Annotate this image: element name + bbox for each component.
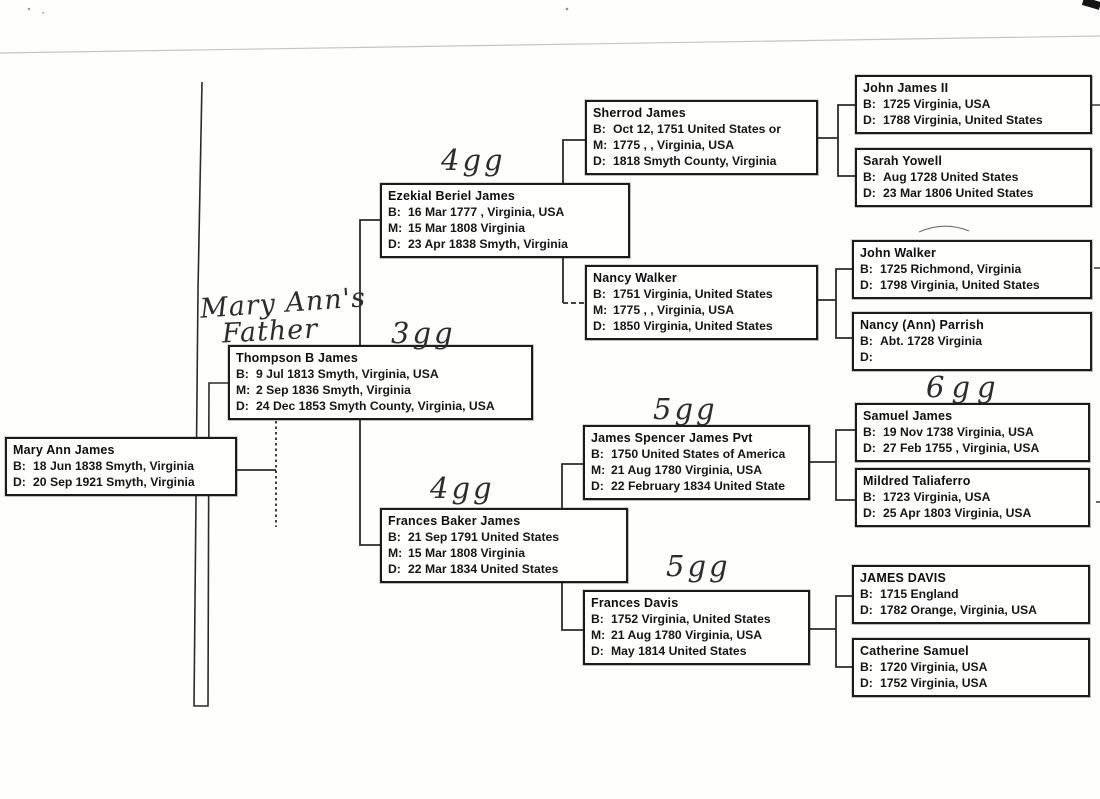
person-name: Samuel James (863, 408, 1082, 424)
line-label: D: (860, 277, 880, 293)
line-label: M: (388, 220, 408, 236)
line-label: D: (591, 478, 611, 494)
death-line: D:1850 Virginia, United States (593, 318, 810, 334)
pen-squiggle (919, 226, 969, 232)
page-edge-line (0, 36, 1100, 53)
person-name: Mary Ann James (13, 442, 229, 458)
line-value: 22 February 1834 United State (611, 479, 785, 493)
birth-line: B:1725 Richmond, Virginia (860, 261, 1084, 277)
line-value: 24 Dec 1853 Smyth County, Virginia, USA (256, 399, 495, 413)
person-box-samuel-james: Samuel James B:19 Nov 1738 Virginia, USA… (855, 403, 1090, 462)
line-label: M: (388, 545, 408, 561)
edge-dashes (1091, 105, 1100, 502)
death-line: D:1752 Virginia, USA (860, 675, 1082, 691)
line-value: 1775 , , Virginia, USA (613, 303, 734, 317)
line-label: D: (236, 398, 256, 414)
line-value: 1818 Smyth County, Virginia (613, 154, 776, 168)
marriage-line: M:1775 , , Virginia, USA (593, 137, 810, 153)
line-value: 1775 , , Virginia, USA (613, 138, 734, 152)
person-box-john-walker: John Walker B:1725 Richmond, Virginia D:… (852, 240, 1092, 299)
birth-line: B:1723 Virginia, USA (863, 489, 1082, 505)
birth-line: B:16 Mar 1777 , Virginia, USA (388, 204, 622, 220)
line-value: 25 Apr 1803 Virginia, USA (883, 506, 1031, 520)
death-line: D:20 Sep 1921 Smyth, Virginia (13, 474, 229, 490)
line-value: 2 Sep 1836 Smyth, Virginia (256, 383, 411, 397)
marriage-line: M:21 Aug 1780 Virginia, USA (591, 462, 802, 478)
line-value: 20 Sep 1921 Smyth, Virginia (33, 475, 195, 489)
line-label: D: (593, 318, 613, 334)
line-value: 1798 Virginia, United States (880, 278, 1040, 292)
death-line: D: (860, 349, 1084, 365)
line-label: B: (863, 169, 883, 185)
line-value: 21 Sep 1791 United States (408, 530, 559, 544)
line-value: 1782 Orange, Virginia, USA (880, 603, 1037, 617)
person-box-frances-baker-james: Frances Baker James B:21 Sep 1791 United… (380, 508, 628, 583)
line-label: B: (860, 261, 880, 277)
handwritten-generation-label-5gg-jamesspencer: 5gg (653, 392, 718, 426)
death-line: D:27 Feb 1755 , Virginia, USA (863, 440, 1082, 456)
line-value: 21 Aug 1780 Virginia, USA (611, 628, 762, 642)
line-label: B: (388, 204, 408, 220)
line-label: B: (863, 96, 883, 112)
person-name: Thompson B James (236, 350, 525, 366)
line-label: B: (860, 333, 880, 349)
line-label: D: (388, 561, 408, 577)
line-label: B: (860, 586, 880, 602)
line-value: 22 Mar 1834 United States (408, 562, 558, 576)
person-name: Nancy Walker (593, 270, 810, 286)
birth-line: B:1725 Virginia, USA (863, 96, 1084, 112)
line-value: 1715 England (880, 587, 959, 601)
person-name: JAMES DAVIS (860, 570, 1082, 586)
marriage-line: M:15 Mar 1808 Virginia (388, 545, 620, 561)
person-box-frances-davis: Frances Davis B:1752 Virginia, United St… (583, 590, 810, 665)
death-line: D:May 1814 United States (591, 643, 802, 659)
birth-line: B:Aug 1728 United States (863, 169, 1084, 185)
line-value: Oct 12, 1751 United States or (613, 122, 781, 136)
birth-line: B:1715 England (860, 586, 1082, 602)
line-label: B: (863, 424, 883, 440)
person-box-mary-ann-james: Mary Ann James B:18 Jun 1838 Smyth, Virg… (5, 437, 237, 496)
person-box-ezekial-beriel-james: Ezekial Beriel James B:16 Mar 1777 , Vir… (380, 183, 630, 258)
line-label: D: (860, 602, 880, 618)
line-label: M: (591, 462, 611, 478)
handwritten-generation-label-4gg-ezekial: 4gg (441, 143, 506, 177)
handwritten-generation-label-6gg-samuel: 6gg (926, 370, 1003, 404)
connector-jamesspencer-parents (836, 430, 856, 500)
person-name: James Spencer James Pvt (591, 430, 802, 446)
line-label: B: (860, 659, 880, 675)
death-line: D:22 February 1834 United State (591, 478, 802, 494)
death-line: D:1818 Smyth County, Virginia (593, 153, 810, 169)
line-label: D: (13, 474, 33, 490)
line-label: B: (13, 458, 33, 474)
connector-francesdavis-parents (836, 596, 853, 667)
handwritten-generation-label-4gg-francesbaker: 4gg (430, 471, 495, 505)
line-label: M: (593, 137, 613, 153)
hand-drawn-spine-line (194, 82, 228, 706)
person-name: Frances Davis (591, 595, 802, 611)
line-value: 27 Feb 1755 , Virginia, USA (883, 441, 1039, 455)
line-value: 1725 Richmond, Virginia (880, 262, 1021, 276)
scanned-pedigree-page: Mary Ann's Father 4gg 3gg 5gg 4gg 5gg 6g… (0, 0, 1100, 799)
person-name: Sherrod James (593, 105, 810, 121)
person-box-james-spencer-james-pvt: James Spencer James Pvt B:1750 United St… (583, 425, 810, 500)
scan-speck (42, 12, 44, 14)
handwritten-generation-label-3gg-thompson: 3gg (391, 316, 456, 350)
birth-line: B:18 Jun 1838 Smyth, Virginia (13, 458, 229, 474)
line-label: D: (863, 112, 883, 128)
birth-line: B:1751 Virginia, United States (593, 286, 810, 302)
marriage-line: M:21 Aug 1780 Virginia, USA (591, 627, 802, 643)
line-label: M: (591, 627, 611, 643)
person-box-mildred-taliaferro: Mildred Taliaferro B:1723 Virginia, USA … (855, 468, 1090, 527)
line-value: 23 Apr 1838 Smyth, Virginia (408, 237, 568, 251)
line-value: 1725 Virginia, USA (883, 97, 990, 111)
line-value: 19 Nov 1738 Virginia, USA (883, 425, 1034, 439)
line-value: 15 Mar 1808 Virginia (408, 546, 525, 560)
person-box-nancy-ann-parrish: Nancy (Ann) Parrish B:Abt. 1728 Virginia… (852, 312, 1092, 371)
line-label: B: (863, 489, 883, 505)
line-value: 23 Mar 1806 United States (883, 186, 1033, 200)
line-value: 18 Jun 1838 Smyth, Virginia (33, 459, 194, 473)
line-value: 1723 Virginia, USA (883, 490, 990, 504)
line-value: 21 Aug 1780 Virginia, USA (611, 463, 762, 477)
marriage-line: M:2 Sep 1836 Smyth, Virginia (236, 382, 525, 398)
line-label: M: (593, 302, 613, 318)
death-line: D:23 Apr 1838 Smyth, Virginia (388, 236, 622, 252)
line-label: D: (593, 153, 613, 169)
person-name: Nancy (Ann) Parrish (860, 317, 1084, 333)
handwritten-note-line2: Father (221, 314, 319, 350)
death-line: D:25 Apr 1803 Virginia, USA (863, 505, 1082, 521)
person-box-thompson-b-james: Thompson B James B:9 Jul 1813 Smyth, Vir… (228, 345, 533, 420)
person-name: Ezekial Beriel James (388, 188, 622, 204)
line-label: D: (863, 440, 883, 456)
person-name: Sarah Yowell (863, 153, 1084, 169)
marriage-line: M:1775 , , Virginia, USA (593, 302, 810, 318)
line-value: 9 Jul 1813 Smyth, Virginia, USA (256, 367, 439, 381)
line-value: 16 Mar 1777 , Virginia, USA (408, 205, 564, 219)
line-value: 1750 United States of America (611, 447, 785, 461)
line-label: B: (591, 446, 611, 462)
person-box-james-davis: JAMES DAVIS B:1715 England D:1782 Orange… (852, 565, 1090, 624)
person-box-catherine-samuel: Catherine Samuel B:1720 Virginia, USA D:… (852, 638, 1090, 697)
line-label: B: (593, 121, 613, 137)
person-box-john-james-ii: John James II B:1725 Virginia, USA D:178… (855, 75, 1092, 134)
death-line: D:1782 Orange, Virginia, USA (860, 602, 1082, 618)
line-value: 1788 Virginia, United States (883, 113, 1043, 127)
line-label: D: (863, 185, 883, 201)
person-box-sherrod-james: Sherrod James B:Oct 12, 1751 United Stat… (585, 100, 818, 175)
line-value: Abt. 1728 Virginia (880, 334, 982, 348)
line-value: 1720 Virginia, USA (880, 660, 987, 674)
line-label: B: (388, 529, 408, 545)
scan-speck (28, 8, 30, 10)
line-label: B: (593, 286, 613, 302)
line-value: 1752 Virginia, United States (611, 612, 771, 626)
person-box-nancy-walker: Nancy Walker B:1751 Virginia, United Sta… (585, 265, 818, 340)
page-spine (194, 82, 228, 706)
birth-line: B:Oct 12, 1751 United States or (593, 121, 810, 137)
birth-line: B:1720 Virginia, USA (860, 659, 1082, 675)
person-name: Mildred Taliaferro (863, 473, 1082, 489)
death-line: D:22 Mar 1834 United States (388, 561, 620, 577)
death-line: D:23 Mar 1806 United States (863, 185, 1084, 201)
person-name: John Walker (860, 245, 1084, 261)
line-label: M: (236, 382, 256, 398)
marriage-line: M:15 Mar 1808 Virginia (388, 220, 622, 236)
birth-line: B:19 Nov 1738 Virginia, USA (863, 424, 1082, 440)
person-name: Frances Baker James (388, 513, 620, 529)
scan-speck (566, 8, 569, 11)
connector-sherrod-parents (838, 105, 856, 176)
line-value: Aug 1728 United States (883, 170, 1018, 184)
line-value: 15 Mar 1808 Virginia (408, 221, 525, 235)
handwritten-generation-label-5gg-francesdavis: 5gg (666, 549, 731, 583)
birth-line: B:21 Sep 1791 United States (388, 529, 620, 545)
birth-line: B:Abt. 1728 Virginia (860, 333, 1084, 349)
person-name: John James II (863, 80, 1084, 96)
connector-nancywalker-parents (836, 269, 853, 338)
line-label: D: (591, 643, 611, 659)
line-value: 1752 Virginia, USA (880, 676, 987, 690)
death-line: D:1798 Virginia, United States (860, 277, 1084, 293)
birth-line: B:9 Jul 1813 Smyth, Virginia, USA (236, 366, 525, 382)
birth-line: B:1752 Virginia, United States (591, 611, 802, 627)
death-line: D:1788 Virginia, United States (863, 112, 1084, 128)
person-name: Catherine Samuel (860, 643, 1082, 659)
line-label: D: (388, 236, 408, 252)
line-value: 1751 Virginia, United States (613, 287, 773, 301)
line-label: D: (863, 505, 883, 521)
line-value: May 1814 United States (611, 644, 746, 658)
line-label: B: (236, 366, 256, 382)
line-label: D: (860, 675, 880, 691)
death-line: D:24 Dec 1853 Smyth County, Virginia, US… (236, 398, 525, 414)
line-label: B: (591, 611, 611, 627)
birth-line: B:1750 United States of America (591, 446, 802, 462)
person-box-sarah-yowell: Sarah Yowell B:Aug 1728 United States D:… (855, 148, 1092, 207)
corner-mark (1083, 1, 1100, 6)
line-label: D: (860, 349, 880, 365)
line-value: 1850 Virginia, United States (613, 319, 773, 333)
